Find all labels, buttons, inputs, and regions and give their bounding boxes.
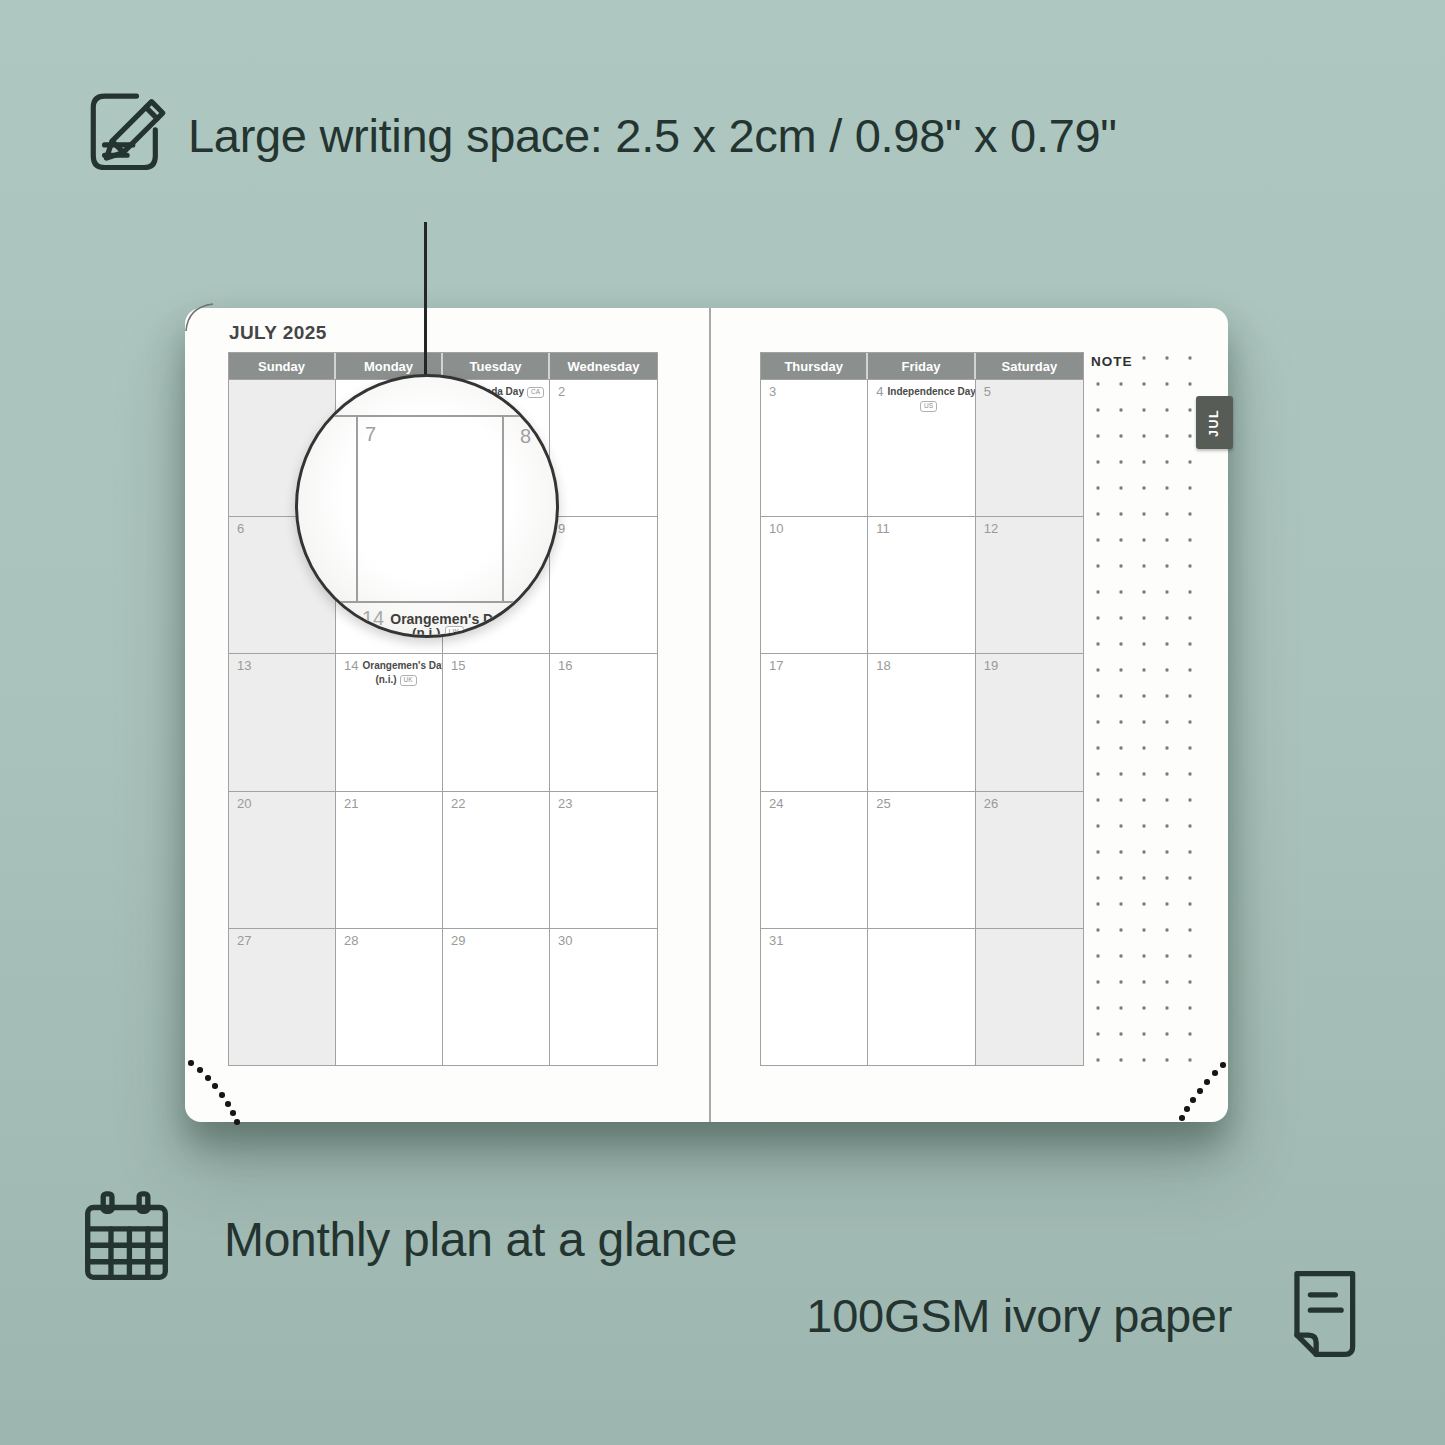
day-number: 2 (558, 385, 565, 398)
corner-perforation-dot (230, 1110, 236, 1116)
paper-icon (1272, 1262, 1368, 1366)
day-header-friday: Friday (868, 353, 975, 379)
calendar-cell-3: 3 (761, 379, 868, 516)
day-number: 24 (769, 797, 783, 810)
day-number: 22 (451, 797, 465, 810)
country-badge: UK (400, 675, 417, 686)
day-header-tuesday: Tuesday (443, 353, 550, 379)
day-number: 9 (558, 522, 565, 535)
country-badge: CA (527, 387, 544, 398)
planner-month-title: JULY 2025 (229, 322, 327, 344)
day-header-sunday: Sunday (229, 353, 336, 379)
day-number: 14 (344, 659, 358, 672)
note-dot-grid (1090, 352, 1204, 1068)
calendar-cell-23: 23 (550, 791, 657, 928)
month-tab-jul: JUL (1196, 396, 1233, 449)
corner-perforation-dot (234, 1119, 240, 1125)
day-header-thursday: Thursday (761, 353, 868, 379)
calendar-cell-21: 21 (336, 791, 443, 928)
calendar-cell-26: 26 (976, 791, 1083, 928)
calendar-cell-15: 15 (443, 653, 550, 790)
note-label: NOTE (1091, 354, 1138, 371)
day-number: 20 (237, 797, 251, 810)
calendar-cell-11: 11 (868, 516, 975, 653)
day-number: 6 (237, 522, 244, 535)
calendar-cell-2: 2 (550, 379, 657, 516)
calendar-cell-13: 13 (229, 653, 336, 790)
day-number: 21 (344, 797, 358, 810)
spine-divider (709, 308, 711, 1122)
corner-perforation-dot (1179, 1115, 1185, 1121)
calendar-cell-19: 19 (976, 653, 1083, 790)
day-number: 25 (876, 797, 890, 810)
feature-paper-label: 100GSM ivory paper (806, 1288, 1232, 1343)
holiday-label: Orangemen's Day (362, 659, 443, 672)
calendar-cell-25: 25 (868, 791, 975, 928)
calendar-cell-12: 12 (976, 516, 1083, 653)
day-number: 12 (984, 522, 998, 535)
calendar-cell-16: 16 (550, 653, 657, 790)
corner-perforation-dot (197, 1067, 203, 1073)
calendar-cell-14: 14Orangemen's Day(n.i.)UK (336, 653, 443, 790)
day-number: 18 (876, 659, 890, 672)
day-number: 4 (876, 385, 883, 398)
day-number: 30 (558, 934, 572, 947)
calendar-cell-empty (868, 928, 975, 1065)
country-badge: US (920, 401, 937, 412)
page-curl-line (181, 299, 219, 337)
day-number: 23 (558, 797, 572, 810)
calendar-cell-18: 18 (868, 653, 975, 790)
day-number: 17 (769, 659, 783, 672)
corner-perforation-dot (1197, 1088, 1203, 1094)
corner-perforation-dot (188, 1060, 194, 1066)
calendar-cell-4: 4Independence DayUS (868, 379, 975, 516)
calendar-cell-10: 10 (761, 516, 868, 653)
calendar-cell-31: 31 (761, 928, 868, 1065)
holiday-detail: (n.i.) (375, 674, 396, 685)
day-number: 31 (769, 934, 783, 947)
month-tab-label: JUL (1208, 408, 1222, 436)
day-number: 13 (237, 659, 251, 672)
calendar-right-page: ThursdayFridaySaturday34Independence Day… (760, 352, 1084, 1066)
corner-perforation-dot (1184, 1106, 1190, 1112)
day-header-saturday: Saturday (976, 353, 1083, 379)
magnified-holiday-detail: (n.i.) (412, 626, 441, 638)
corner-perforation-dot (1212, 1070, 1218, 1076)
corner-perforation-dot (1220, 1062, 1226, 1068)
corner-perforation-dot (212, 1083, 218, 1089)
day-number: 19 (984, 659, 998, 672)
calendar-cell-20: 20 (229, 791, 336, 928)
calendar-cell-27: 27 (229, 928, 336, 1065)
magnifier-pointer-line (424, 222, 427, 378)
corner-perforation-dot (1190, 1097, 1196, 1103)
calendar-cell-17: 17 (761, 653, 868, 790)
calendar-cell-22: 22 (443, 791, 550, 928)
day-header-wednesday: Wednesday (550, 353, 657, 379)
calendar-cell-5: 5 (976, 379, 1083, 516)
magnified-day-8: 8 (520, 426, 531, 446)
magnified-grid-line (356, 415, 358, 601)
corner-perforation-dot (1204, 1079, 1210, 1085)
corner-perforation-dot (205, 1075, 211, 1081)
day-number: 16 (558, 659, 572, 672)
day-number: 26 (984, 797, 998, 810)
calendar-cell-30: 30 (550, 928, 657, 1065)
day-number: 10 (769, 522, 783, 535)
corner-perforation-dot (219, 1092, 225, 1098)
day-number: 3 (769, 385, 776, 398)
day-number: 29 (451, 934, 465, 947)
day-number: 27 (237, 934, 251, 947)
calendar-icon (78, 1190, 175, 1287)
note-pencil-icon (82, 78, 176, 178)
magnifier-circle: 7 8 14 Orangemen's Day (n.i.) UK (295, 374, 559, 638)
magnified-grid-line (502, 415, 504, 601)
corner-perforation-dot (225, 1101, 231, 1107)
day-number: 15 (451, 659, 465, 672)
calendar-cell-28: 28 (336, 928, 443, 1065)
day-number: 5 (984, 385, 991, 398)
calendar-cell-29: 29 (443, 928, 550, 1065)
day-number: 11 (876, 522, 890, 535)
calendar-cell-empty (976, 928, 1083, 1065)
magnified-day-7: 7 (365, 424, 376, 444)
calendar-cell-24: 24 (761, 791, 868, 928)
calendar-cell-9: 9 (550, 516, 657, 653)
feature-writing-space-label: Large writing space: 2.5 x 2cm / 0.98" x… (188, 108, 1117, 163)
holiday-label: Independence Day (888, 385, 976, 398)
day-number: 28 (344, 934, 358, 947)
magnified-grid-line (298, 415, 556, 417)
feature-monthly-plan-label: Monthly plan at a glance (224, 1212, 737, 1267)
